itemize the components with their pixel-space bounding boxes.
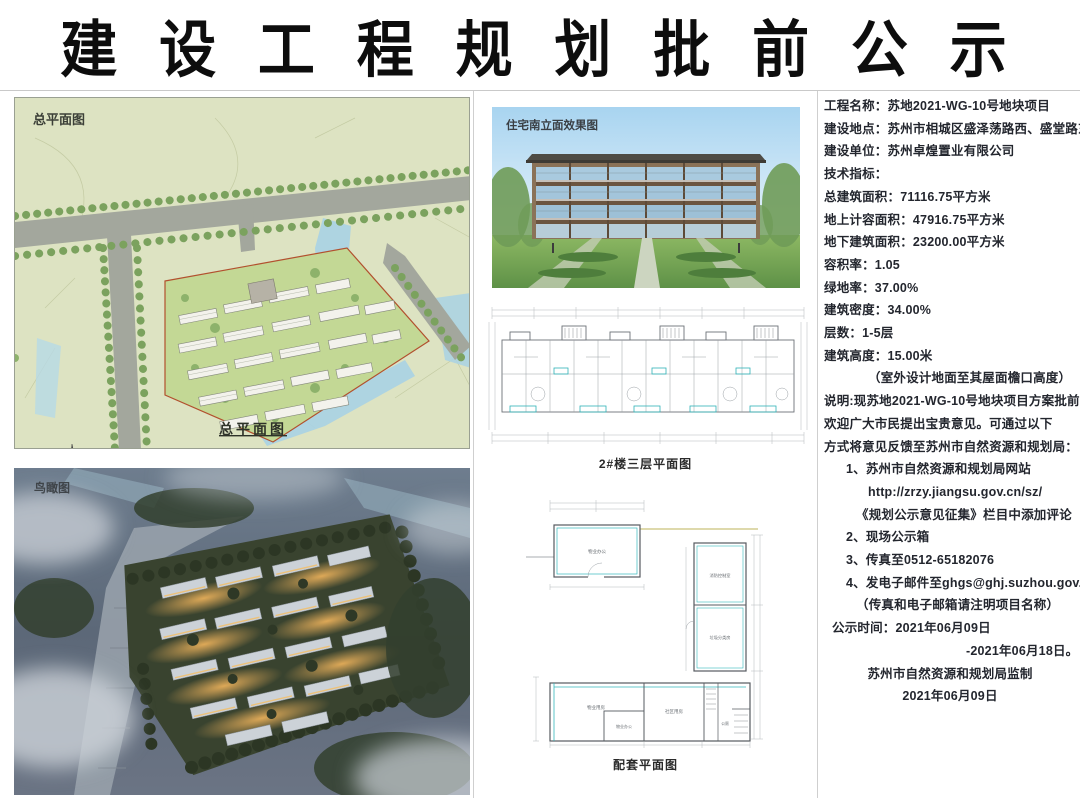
- info-line: 地上计容面积：47916.75平方米: [824, 209, 1076, 232]
- floor-plan-image: [484, 302, 812, 449]
- info-line: 绿地率：37.00%: [824, 277, 1076, 300]
- info-line: 层数：1-5层: [824, 322, 1076, 345]
- room-label: 垃圾分类房: [710, 634, 731, 641]
- info-line: 2、现场公示箱: [824, 526, 1076, 549]
- info-line: 建筑高度：15.00米: [824, 345, 1076, 368]
- middle-column: 住宅南立面效果图: [473, 91, 818, 798]
- info-line: 方式将意见反馈至苏州市自然资源和规划局：: [824, 436, 1076, 459]
- info-line: 公示时间：2021年06月09日: [824, 617, 1076, 640]
- aerial-view-image: 鸟瞰图: [14, 468, 470, 795]
- info-line: 容积率：1.05: [824, 254, 1076, 277]
- title-bar: 建 设 工 程 规 划 批 前 公 示: [0, 0, 1080, 91]
- info-line: 建设单位：苏州卓煌置业有限公司: [824, 140, 1076, 163]
- facade-rendering-image: 住宅南立面效果图: [492, 107, 800, 288]
- info-line: 4、发电子邮件至ghgs@ghj.suzhou.gov.cn: [824, 572, 1076, 595]
- right-column: 工程名称：苏地2021-WG-10号地块项目建设地点：苏州市相城区盛泽荡路西、盛…: [818, 91, 1080, 798]
- info-line: 建设地点：苏州市相城区盛泽荡路西、盛堂路东: [824, 118, 1076, 141]
- floor-plan-caption: 2#楼三层平面图: [474, 455, 817, 472]
- info-line: 技术指标：: [824, 163, 1076, 186]
- left-column: 总平面图 总平面图: [0, 91, 473, 798]
- community-block: 物业用房 物业办公 社区用房 公厕: [550, 683, 750, 741]
- amenity-plan-caption: 配套平面图: [474, 756, 817, 773]
- info-line: 2021年06月09日: [824, 685, 1076, 708]
- info-line: -2021年06月18日。: [824, 640, 1076, 663]
- info-line: 《规划公示意见征集》栏目中添加评论: [824, 504, 1076, 527]
- room-label: 公厕: [721, 721, 729, 726]
- room-label: 社区用房: [665, 708, 683, 715]
- room-label: 消防控制室: [710, 572, 731, 579]
- utility-block: 消防控制室 垃圾分类房: [686, 543, 746, 671]
- project-info-panel: 工程名称：苏地2021-WG-10号地块项目建设地点：苏州市相城区盛泽荡路西、盛…: [824, 95, 1076, 708]
- info-line: 3、传真至0512-65182076: [824, 549, 1076, 572]
- info-line: 总建筑面积：71116.75平方米: [824, 186, 1076, 209]
- info-line: 1、苏州市自然资源和规划局网站: [824, 458, 1076, 481]
- building-facade: [526, 154, 766, 239]
- content-area: 总平面图 总平面图: [0, 91, 1080, 798]
- info-line: （室外设计地面至其屋面檐口高度）: [824, 367, 1076, 390]
- amenity-plan-image: 物业办公 消防控制室 垃圾分类房: [526, 487, 770, 752]
- room-label: 物业办公: [616, 723, 632, 729]
- property-office-room: 物业办公: [554, 525, 640, 578]
- info-line: http://zrzy.jiangsu.gov.cn/sz/: [824, 481, 1076, 504]
- site-plan-image: 总平面图 总平面图: [14, 97, 470, 449]
- info-line: 说明:现苏地2021-WG-10号地块项目方案批前公示。: [824, 390, 1076, 413]
- room-label: 物业办公: [588, 548, 606, 555]
- info-line: 欢迎广大市民提出宝贵意见。可通过以下: [824, 413, 1076, 436]
- notice-page: 建 设 工 程 规 划 批 前 公 示: [0, 0, 1080, 798]
- info-line: 工程名称：苏地2021-WG-10号地块项目: [824, 95, 1076, 118]
- info-line: 建筑密度：34.00%: [824, 299, 1076, 322]
- page-title: 建 设 工 程 规 划 批 前 公 示: [60, 1, 1020, 90]
- info-line: 地下建筑面积：23200.00平方米: [824, 231, 1076, 254]
- rendering-corner-label: 住宅南立面效果图: [506, 118, 598, 132]
- info-line: （传真和电子邮箱请注明项目名称）: [824, 594, 1076, 617]
- room-label: 物业用房: [587, 704, 605, 711]
- site-plan-corner-label: 总平面图: [33, 112, 85, 127]
- aerial-corner-label: 鸟瞰图: [34, 480, 70, 495]
- info-line: 苏州市自然资源和规划局监制: [824, 663, 1076, 686]
- site-plan-caption: 总平面图: [219, 421, 287, 437]
